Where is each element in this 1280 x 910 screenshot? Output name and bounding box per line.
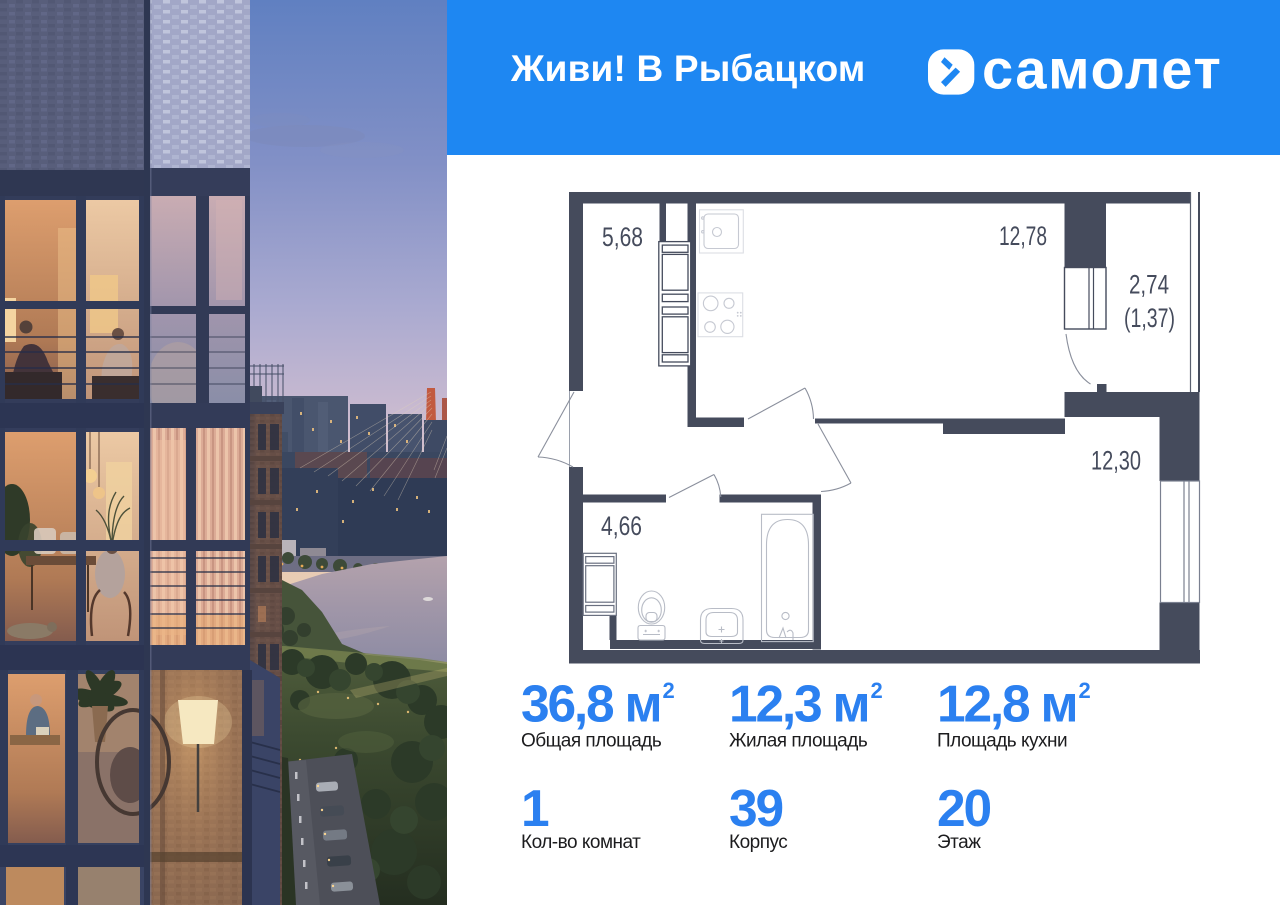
svg-text:20: 20 bbox=[937, 779, 990, 837]
svg-text:5,68: 5,68 bbox=[602, 222, 643, 252]
svg-text:36,8 м2: 36,8 м2 bbox=[521, 675, 674, 733]
svg-text:Корпус: Корпус bbox=[729, 832, 787, 853]
svg-text:12,30: 12,30 bbox=[1091, 446, 1141, 476]
svg-text:1: 1 bbox=[521, 779, 550, 837]
svg-text:12,78: 12,78 bbox=[999, 221, 1047, 251]
svg-text:(1,37): (1,37) bbox=[1124, 303, 1175, 333]
svg-text:Жилая площадь: Жилая площадь bbox=[729, 731, 868, 752]
svg-text:39: 39 bbox=[729, 779, 782, 837]
svg-text:12,8 м2: 12,8 м2 bbox=[937, 675, 1090, 733]
svg-text:Общая площадь: Общая площадь bbox=[521, 731, 662, 752]
svg-text:Площадь кухни: Площадь кухни bbox=[937, 731, 1067, 752]
svg-text:4,66: 4,66 bbox=[601, 511, 642, 541]
svg-text:12,3 м2: 12,3 м2 bbox=[729, 675, 882, 733]
svg-text:Этаж: Этаж bbox=[937, 832, 981, 853]
svg-text:Кол-во комнат: Кол-во комнат bbox=[521, 832, 641, 853]
svg-text:2,74: 2,74 bbox=[1129, 270, 1169, 300]
